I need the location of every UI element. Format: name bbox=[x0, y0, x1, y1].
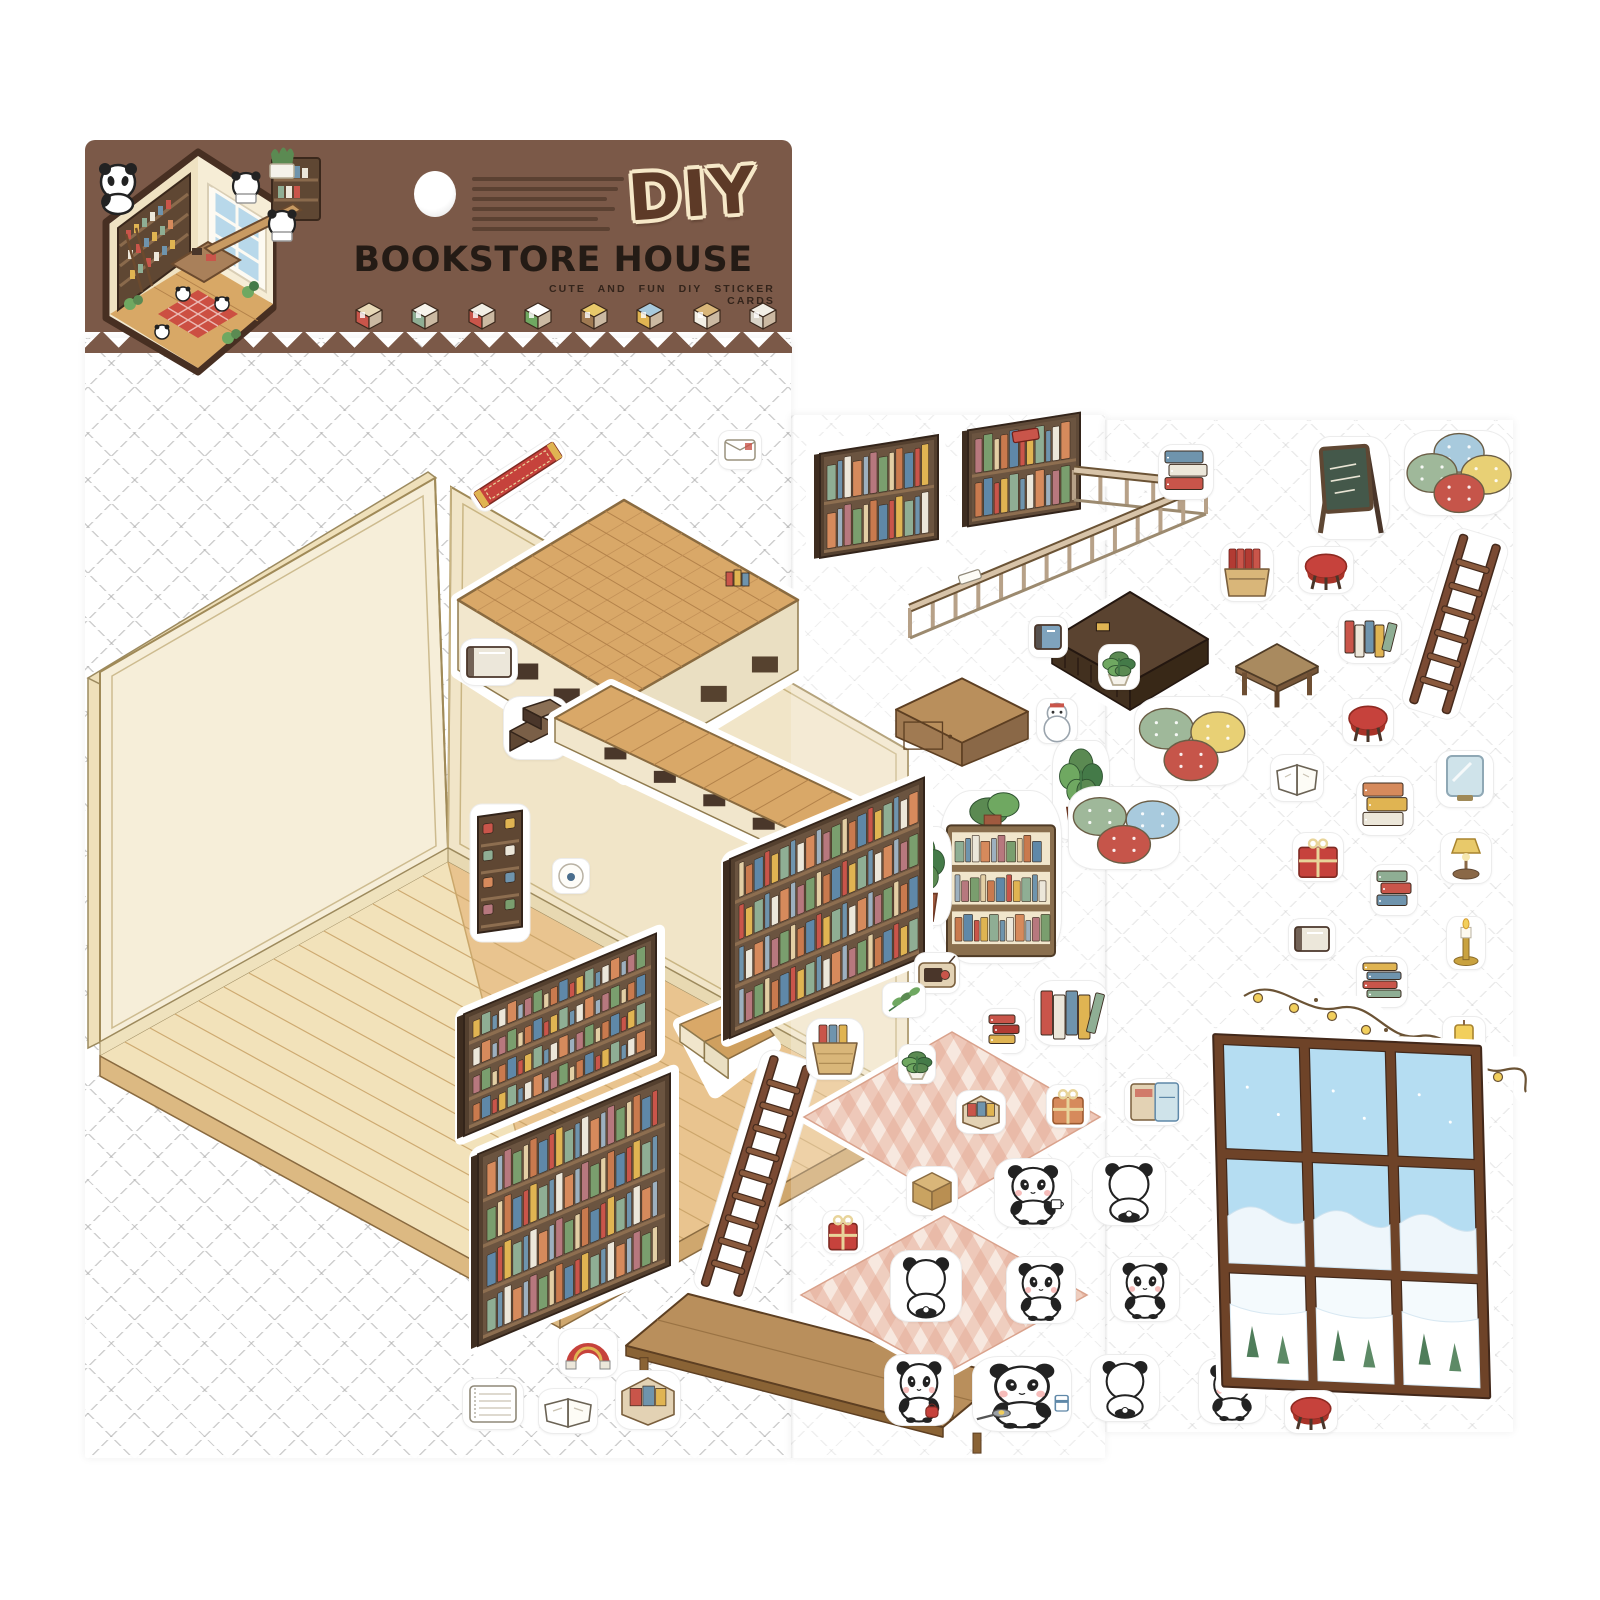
sticker-books-bundle bbox=[1338, 610, 1402, 664]
bookshelf-mini-icon bbox=[352, 298, 386, 332]
hexagon-preview-scene bbox=[88, 142, 328, 390]
sticker-small-book bbox=[1288, 918, 1336, 960]
sticker-notepad bbox=[462, 1378, 524, 1430]
sticker-rainbow-magnet bbox=[558, 1328, 618, 1378]
sofa-mini-icon bbox=[746, 298, 780, 332]
sticker-panda-sit-2 bbox=[1110, 1256, 1180, 1322]
sticker-white-book bbox=[460, 638, 518, 686]
sticker-leaf-sprig bbox=[882, 982, 926, 1018]
hang-hole bbox=[414, 171, 456, 217]
sticker-blue-book bbox=[1028, 616, 1068, 658]
sticker-plant-pot bbox=[1098, 644, 1140, 690]
sticker-cushions-2 bbox=[1134, 696, 1248, 786]
sticker-craft-box bbox=[615, 1370, 681, 1430]
sticker-panda-cook bbox=[972, 1356, 1072, 1432]
product-title: BOOKSTORE HOUSE bbox=[318, 240, 788, 282]
lamp-mini-icon bbox=[577, 298, 611, 332]
cabinet-mini-icon bbox=[465, 298, 499, 332]
sticker-gift-2 bbox=[1292, 832, 1344, 882]
paper-bag-mini-icon bbox=[408, 298, 442, 332]
sticker-sideboard bbox=[888, 668, 1036, 772]
sticker-stool-3 bbox=[1284, 1390, 1338, 1434]
sticker-orange-books bbox=[1356, 776, 1414, 836]
sticker-panda-back-rug bbox=[890, 1250, 962, 1322]
sticker-book-pile-1 bbox=[1370, 864, 1418, 916]
sticker-cushions-1 bbox=[1404, 430, 1510, 516]
sticker-chalkboard bbox=[1310, 436, 1390, 540]
sticker-mirror bbox=[1436, 750, 1494, 808]
sticker-bookcase-plant bbox=[940, 790, 1062, 964]
sticker-gift-basket bbox=[1046, 1084, 1090, 1128]
product-photo: { "product": { "logo": "DIY", "title": "… bbox=[0, 0, 1600, 1600]
sticker-window bbox=[1206, 1016, 1498, 1420]
sticker-candle bbox=[1446, 916, 1486, 970]
sticker-panda-back-2 bbox=[1090, 1354, 1160, 1422]
sticker-ladder-2 bbox=[1404, 528, 1506, 720]
sticker-cardboard-box bbox=[906, 1166, 958, 1216]
sticker-envelope bbox=[718, 430, 762, 470]
sticker-snowman bbox=[1036, 698, 1078, 744]
sticker-open-book-1 bbox=[538, 1388, 598, 1434]
sticker-book-crate bbox=[1220, 542, 1274, 602]
sticker-lamp bbox=[1440, 832, 1492, 884]
sticker-rug-plant bbox=[898, 1044, 936, 1084]
diy-logo: DIY bbox=[595, 145, 791, 250]
panda-mascot-icon bbox=[99, 163, 137, 214]
sideboard-mini-icon bbox=[690, 298, 724, 332]
locker-mini-icon bbox=[633, 298, 667, 332]
sticker-open-book-2 bbox=[1270, 754, 1324, 802]
sticker-blue-books bbox=[1158, 444, 1214, 500]
sticker-panda-cup bbox=[994, 1158, 1072, 1228]
sticker-stool-1 bbox=[1298, 546, 1354, 594]
sticker-panda-sit-1 bbox=[1006, 1256, 1076, 1324]
mini-furniture-icon-row bbox=[352, 296, 780, 332]
plant-mini-icon bbox=[521, 298, 555, 332]
sticker-fridge bbox=[1124, 1078, 1184, 1126]
sticker-panda-back-1 bbox=[1092, 1156, 1166, 1226]
sticker-rug-box bbox=[956, 1090, 1006, 1134]
sticker-panda-bag bbox=[884, 1354, 954, 1426]
sticker-cushions-3 bbox=[1068, 786, 1180, 870]
sticker-stool-2 bbox=[1342, 698, 1394, 746]
